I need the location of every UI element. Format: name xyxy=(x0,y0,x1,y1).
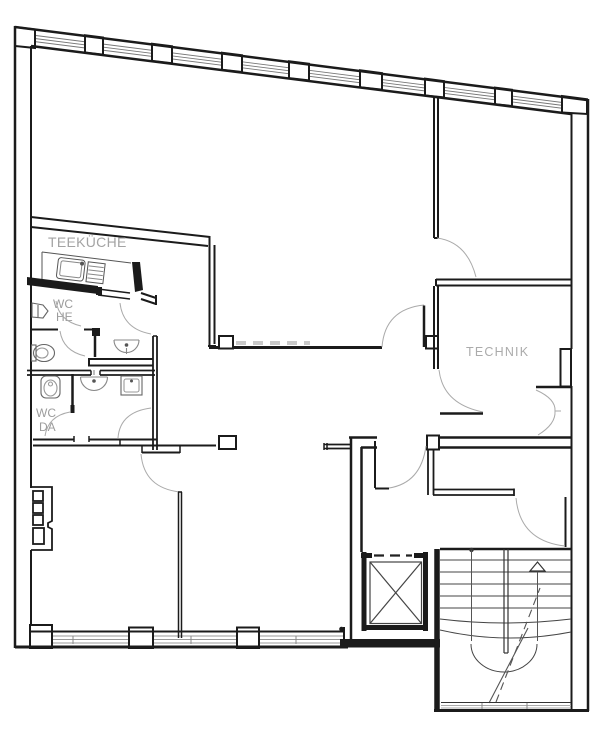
svg-text:WC: WC xyxy=(36,406,56,420)
svg-text:TECHNIK: TECHNIK xyxy=(466,345,529,359)
svg-text:TEEKÜCHE: TEEKÜCHE xyxy=(48,233,127,250)
svg-text:WC: WC xyxy=(53,297,73,311)
